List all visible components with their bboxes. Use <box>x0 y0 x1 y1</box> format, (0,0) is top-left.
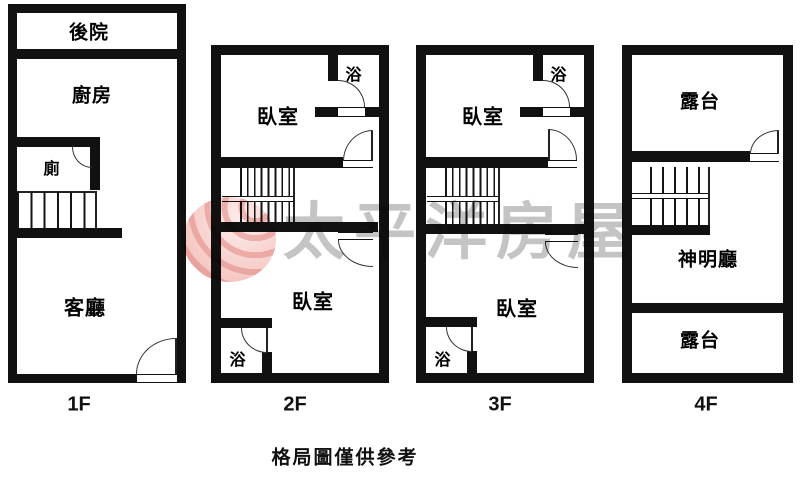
floor-plan-diagram: 後院 廚房 廁 客廳 1F 臥室 浴 臥室 浴 2F 臥室 浴 臥室 浴 3F <box>0 0 800 479</box>
stairs <box>17 192 97 228</box>
floor-label-3f: 3F <box>488 394 511 417</box>
wall <box>328 55 338 81</box>
wall <box>221 318 272 328</box>
stair-edge <box>708 167 710 225</box>
wall <box>426 317 477 327</box>
door-threshold <box>343 160 373 168</box>
room-label-shrine: 神明廳 <box>678 245 738 272</box>
room-label-living: 客廳 <box>64 292 106 321</box>
door-threshold <box>750 153 779 162</box>
floor-label-4f: 4F <box>694 394 717 417</box>
wall <box>211 157 343 168</box>
room-label-bath: 浴 <box>550 61 567 85</box>
wall <box>622 151 750 162</box>
wall <box>467 351 477 373</box>
stairs <box>240 168 294 196</box>
room-label-terrace: 露台 <box>680 326 720 353</box>
room-label-backyard: 後院 <box>69 18 109 45</box>
room-label-bedroom: 臥室 <box>292 286 334 315</box>
wall <box>8 49 186 59</box>
stairs <box>445 168 499 196</box>
room-label-bath: 浴 <box>345 61 362 85</box>
room-label-bedroom: 臥室 <box>496 293 538 322</box>
wall <box>262 352 272 373</box>
room-label-kitchen: 廚房 <box>72 81 112 108</box>
floor-label-1f: 1F <box>67 394 90 417</box>
door-threshold <box>338 107 365 117</box>
wall <box>416 157 548 168</box>
watermark-brand: 太平洋房屋 <box>283 202 643 264</box>
pacific-logo <box>183 197 276 282</box>
room-label-bedroom: 臥室 <box>462 101 504 130</box>
room-label-bath: 浴 <box>229 346 246 370</box>
room-label-bedroom: 臥室 <box>257 101 299 130</box>
door-threshold <box>548 160 577 168</box>
room-label-toilet: 廁 <box>43 155 60 179</box>
room-label-bath: 浴 <box>434 346 451 370</box>
stairs <box>650 167 710 193</box>
wall <box>622 303 793 313</box>
door-threshold <box>137 374 177 383</box>
wall <box>8 228 122 238</box>
stair-edge <box>95 192 97 228</box>
stairs <box>650 199 710 225</box>
door-threshold <box>543 107 570 117</box>
floor-label-2f: 2F <box>283 394 306 417</box>
wall <box>8 137 100 147</box>
room-label-terrace: 露台 <box>680 87 720 114</box>
caption-disclaimer: 格局圖僅供參考 <box>271 443 418 470</box>
wall <box>533 55 543 81</box>
